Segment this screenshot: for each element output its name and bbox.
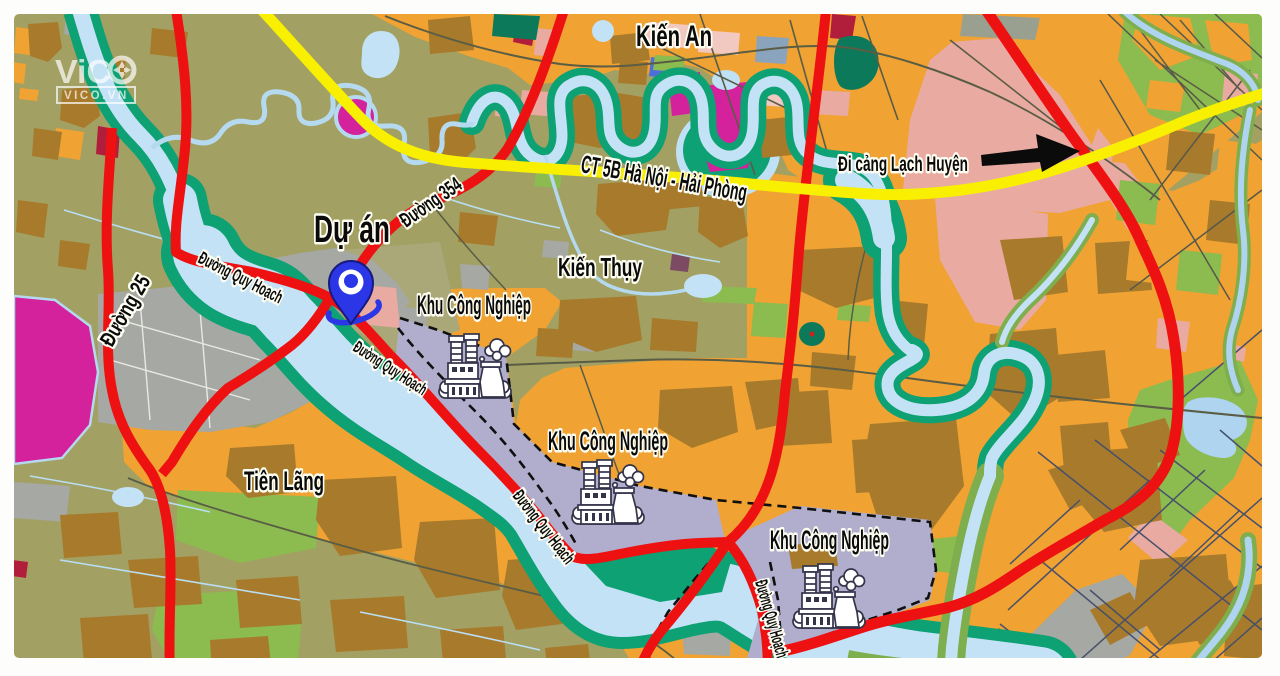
svg-text:Đi cảng Lạch Huyện: Đi cảng Lạch Huyện	[838, 153, 968, 176]
svg-text:Khu Công Nghiệp: Khu Công Nghiệp	[417, 290, 531, 320]
svg-text:ViC: ViC	[55, 53, 111, 90]
svg-text:Khu Công Nghiệp: Khu Công Nghiệp	[770, 525, 889, 555]
svg-text:Dự án: Dự án	[314, 209, 390, 251]
svg-text:Khu Công Nghiệp: Khu Công Nghiệp	[548, 426, 668, 456]
svg-text:VICO.VN: VICO.VN	[64, 90, 129, 102]
svg-text:Kiến Thụy: Kiến Thụy	[558, 252, 642, 282]
svg-text:Kiến An: Kiến An	[636, 20, 712, 53]
svg-text:Tiên Lãng: Tiên Lãng	[244, 466, 324, 496]
